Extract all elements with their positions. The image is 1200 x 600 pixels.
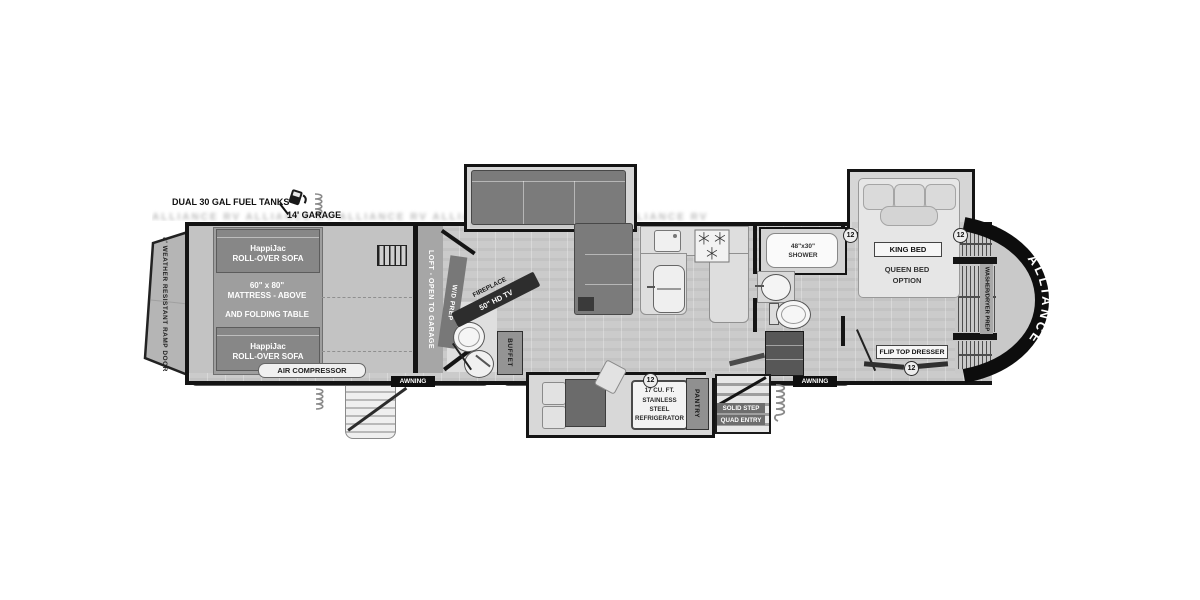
slide-badge: 12 bbox=[904, 361, 919, 376]
entry-steps-label2: QUAD ENTRY bbox=[717, 415, 765, 425]
entry-steps-label1: SOLID STEP bbox=[717, 403, 765, 413]
floorplan-canvas: ALLIANCE RV ALLIANCE RV ALLIANCE RV ALLI… bbox=[0, 0, 1200, 600]
bath-faucet bbox=[755, 285, 764, 287]
toilet-main bbox=[776, 300, 811, 329]
ottoman bbox=[578, 297, 594, 311]
slide-badge: 12 bbox=[643, 373, 658, 388]
dresser-label: FLIP TOP DRESSER bbox=[876, 345, 948, 359]
refrigerator: 17 CU. FT. STAINLESS STEEL REFRIGERATOR bbox=[631, 380, 688, 430]
loft-stairs-icon bbox=[377, 245, 407, 266]
air-compressor-label: AIR COMPRESSOR bbox=[258, 363, 366, 378]
island-faucet bbox=[647, 286, 655, 288]
bath-sink bbox=[761, 274, 791, 301]
stove-icon bbox=[694, 229, 730, 263]
dinette-chair bbox=[542, 382, 566, 405]
bed-cushion bbox=[880, 206, 938, 226]
fold-line bbox=[322, 297, 412, 298]
fuel-tanks-label: DUAL 30 GAL FUEL TANKS bbox=[172, 197, 289, 207]
pantry-label: PANTRY bbox=[686, 378, 707, 428]
queen-option-label: QUEEN BED OPTION bbox=[866, 262, 948, 288]
awning-label-right: AWNING bbox=[793, 376, 837, 387]
bath-wall bbox=[753, 298, 757, 332]
garage-mattress-label: 60" x 80" MATTRESS - ABOVE AND FOLDING T… bbox=[216, 276, 318, 324]
spring-icon-entry bbox=[772, 383, 788, 423]
bedroom-steps bbox=[765, 331, 804, 376]
kitchen-sink-small bbox=[654, 230, 681, 252]
king-bed-label: KING BED bbox=[874, 242, 942, 257]
buffet-label: BUFFET bbox=[497, 331, 521, 373]
bath-wall bbox=[753, 226, 757, 274]
ramp-door-label: 8' WEATHER RESISTANT RAMP DOOR bbox=[156, 236, 172, 372]
refrigerator-label: 17 CU. FT. STAINLESS STEEL REFRIGERATOR bbox=[633, 382, 686, 428]
awning-label-left: AWNING bbox=[391, 376, 435, 387]
sectional-sofa bbox=[471, 170, 626, 225]
spring-icon-garage bbox=[313, 387, 327, 415]
rollover-sofa-top: HappiJac ROLL-OVER SOFA bbox=[216, 229, 320, 273]
bedroom-wall bbox=[841, 316, 845, 346]
shower-label: 48"x30" SHOWER bbox=[761, 229, 845, 273]
island-sink bbox=[653, 265, 685, 313]
counter-right bbox=[709, 253, 749, 323]
loft-label: LOFT - OPEN TO GARAGE bbox=[418, 226, 443, 373]
dinette-chair bbox=[542, 406, 566, 429]
fold-line bbox=[322, 351, 412, 352]
garage-length-label: 14' GARAGE bbox=[287, 210, 341, 220]
slide-badge: 12 bbox=[953, 228, 968, 243]
shower: 48"x30" SHOWER bbox=[759, 227, 847, 275]
rollover-sofa-top-label: HappiJac ROLL-OVER SOFA bbox=[217, 236, 319, 272]
slide-badge: 12 bbox=[843, 228, 858, 243]
